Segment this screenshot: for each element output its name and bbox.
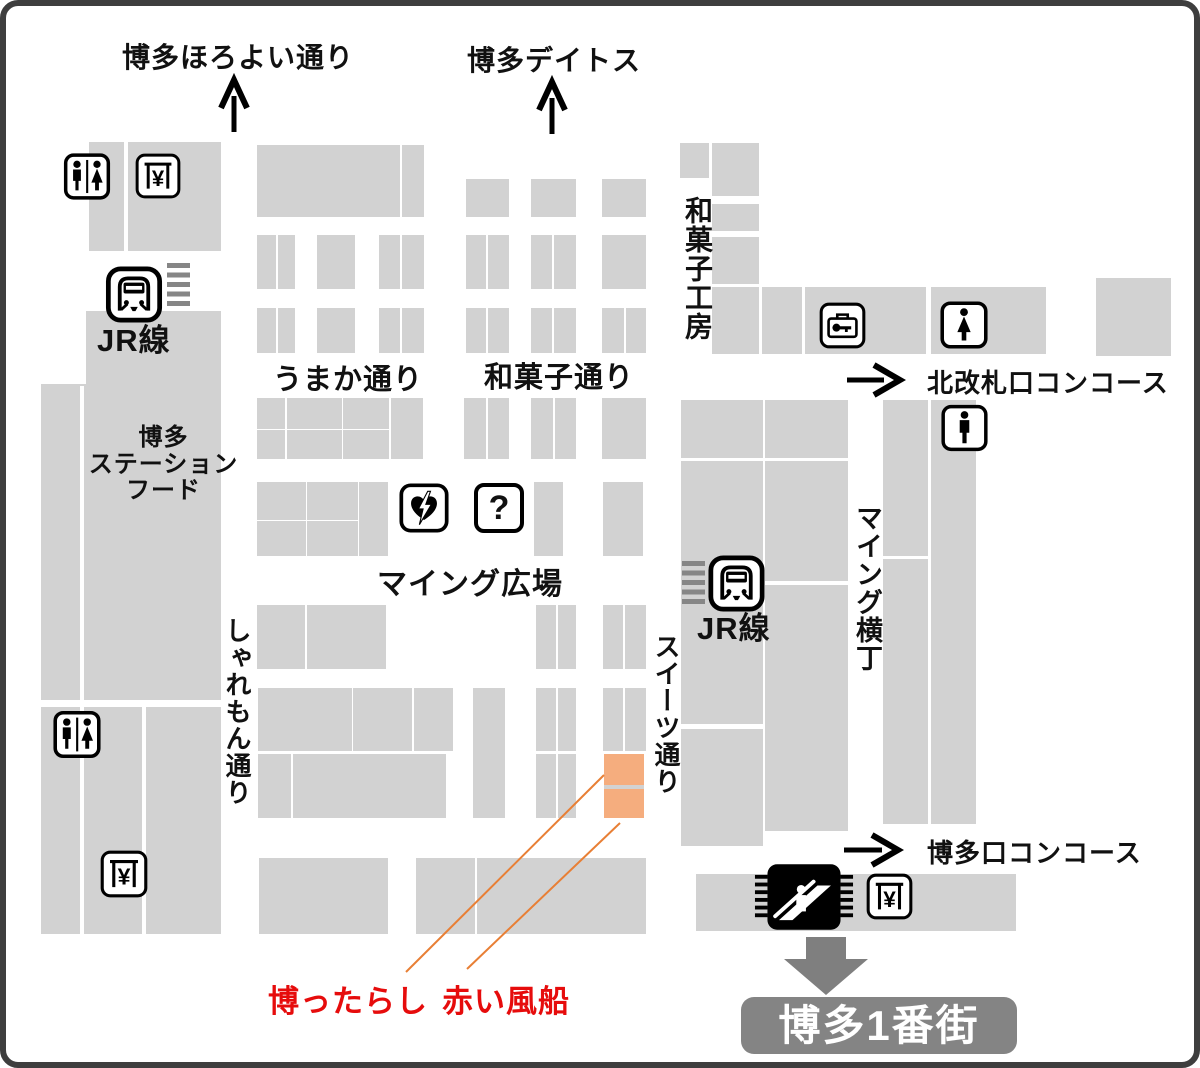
shop-block <box>317 235 355 289</box>
shop-block <box>402 145 424 217</box>
highlighted-shop-label-akai-fusen: 赤い風船 <box>442 976 570 1021</box>
block-divider <box>681 724 763 729</box>
shop-block <box>473 688 505 818</box>
shop-block <box>626 308 646 353</box>
block-divider <box>765 581 848 585</box>
restroom-male-female-icon <box>63 153 111 200</box>
restroom-female-icon <box>940 301 988 349</box>
block-divider <box>41 700 221 707</box>
shop-block <box>464 398 486 459</box>
destination-label-deitos: 博多デイトス <box>467 39 641 79</box>
shop-block <box>343 398 389 429</box>
shop-block <box>307 482 358 520</box>
shop-block <box>625 688 646 751</box>
shop-block <box>1096 278 1171 356</box>
street-label-umaka: うまか通り <box>273 356 423 398</box>
highlighted-shop-block <box>604 754 644 785</box>
shop-block <box>696 874 1016 931</box>
station-map: 博多ほろよい通り 博多デイトス 和菓子工房 JR線 うまか通り 和菓子通り 北改… <box>0 0 1200 1068</box>
shop-block <box>317 308 355 353</box>
shop-block <box>402 308 424 353</box>
shop-block <box>536 754 556 818</box>
shop-block <box>712 237 759 284</box>
shop-block <box>466 179 509 217</box>
shop-block <box>416 858 475 934</box>
shop-block <box>257 521 306 556</box>
shop-block <box>765 461 848 831</box>
shop-block <box>257 308 276 353</box>
block-divider <box>142 706 146 934</box>
shop-block <box>602 398 646 459</box>
shop-block <box>379 308 400 353</box>
question-mark: ? <box>489 489 510 528</box>
shop-block <box>680 143 709 178</box>
shop-block <box>531 398 553 459</box>
shop-block <box>712 287 759 354</box>
shop-block <box>531 179 576 217</box>
restroom-male-icon <box>941 403 988 453</box>
shop-block <box>554 235 576 289</box>
shop-block <box>558 688 576 751</box>
aed-icon <box>399 483 449 533</box>
shop-block <box>555 398 576 459</box>
shop-block <box>488 235 509 289</box>
coin-locker-icon <box>819 302 866 349</box>
information-icon: ? <box>474 483 524 533</box>
shop-block <box>257 235 276 289</box>
plaza-label-ming-hiroba: マイング広場 <box>377 559 563 603</box>
street-label-wagashi-dori: 和菓子通り <box>484 354 634 396</box>
shop-block <box>554 308 576 353</box>
escalator-icon <box>754 862 854 932</box>
shop-block <box>681 461 763 846</box>
destination-label-north-concourse: 北改札口コンコース <box>927 363 1169 400</box>
shop-block <box>602 179 646 217</box>
shop-block <box>353 688 412 751</box>
shop-block <box>488 398 509 459</box>
station-food-line1: 博多 <box>61 425 266 452</box>
station-food-line3: フード <box>61 478 266 505</box>
shop-block <box>414 688 453 751</box>
shop-block <box>883 400 928 556</box>
shop-block <box>391 398 423 459</box>
restroom-male-female-icon <box>53 709 101 760</box>
destination-label-hakataguchi: 博多口コンコース <box>927 833 1142 870</box>
shop-block <box>257 145 400 217</box>
shop-block <box>602 235 646 289</box>
yen-service-icon: ¥ <box>866 872 913 921</box>
shop-block <box>712 204 759 231</box>
shop-block <box>402 235 424 289</box>
shop-block <box>883 559 928 824</box>
shop-block <box>558 754 576 818</box>
shop-block <box>762 287 802 354</box>
shop-block <box>531 308 552 353</box>
highlighted-shop-label-hakattarashi: 博ったらし <box>268 976 428 1021</box>
shop-block <box>681 400 763 458</box>
shop-block <box>307 521 358 556</box>
svg-text:¥: ¥ <box>883 887 896 912</box>
shop-block <box>625 605 646 669</box>
station-food-line2: ステーション <box>61 452 266 479</box>
street-label-horoyoi: 博多ほろよい通り <box>122 36 354 76</box>
shop-block <box>258 754 291 818</box>
shop-block <box>258 688 352 751</box>
svg-text:¥: ¥ <box>118 864 131 890</box>
yen-service-icon: ¥ <box>135 153 181 199</box>
shop-block <box>765 400 848 458</box>
shop-block <box>287 430 342 459</box>
stairs-icon <box>167 263 190 308</box>
shop-block <box>603 605 623 669</box>
shop-block <box>278 308 295 353</box>
shop-block <box>531 235 552 289</box>
shop-label-wagashi-kobo: 和菓子工房 <box>677 196 717 356</box>
shop-block <box>257 605 305 669</box>
shop-block <box>558 605 576 669</box>
shop-block <box>603 482 643 556</box>
shop-block <box>287 398 342 429</box>
stairs-icon <box>682 561 705 605</box>
street-label-sweets: スイーツ通り <box>648 633 685 818</box>
yen-service-icon: ¥ <box>100 850 148 898</box>
shop-block <box>379 235 400 289</box>
shop-block <box>536 605 556 669</box>
shop-block <box>343 430 389 459</box>
shop-block <box>477 858 646 934</box>
shop-block <box>603 688 623 751</box>
shop-block <box>278 235 295 289</box>
highlighted-shop-block <box>604 789 644 818</box>
jr-line-label-left: JR線 <box>97 315 171 360</box>
destination-badge-ichibangai: 博多1番街 <box>741 997 1017 1054</box>
shop-block <box>359 482 388 556</box>
shop-block <box>466 308 486 353</box>
shop-block <box>536 688 556 751</box>
shop-blocks-layer <box>6 6 1194 1062</box>
jr-line-label-mid: JR線 <box>697 603 771 648</box>
shop-block <box>534 482 563 556</box>
shop-block <box>307 605 386 669</box>
svg-text:¥: ¥ <box>152 166 165 191</box>
shop-block <box>293 754 446 818</box>
shop-block <box>259 858 388 934</box>
shop-block <box>488 308 509 353</box>
shop-block <box>602 308 624 353</box>
street-label-sharemon: しゃれもん通り <box>219 617 256 827</box>
shop-block <box>712 143 759 196</box>
street-label-ming-yokocho: マイング横丁 <box>848 504 887 699</box>
shop-block <box>931 400 976 824</box>
shop-block <box>466 235 486 289</box>
area-label-station-food: 博多 ステーション フード <box>61 425 266 505</box>
